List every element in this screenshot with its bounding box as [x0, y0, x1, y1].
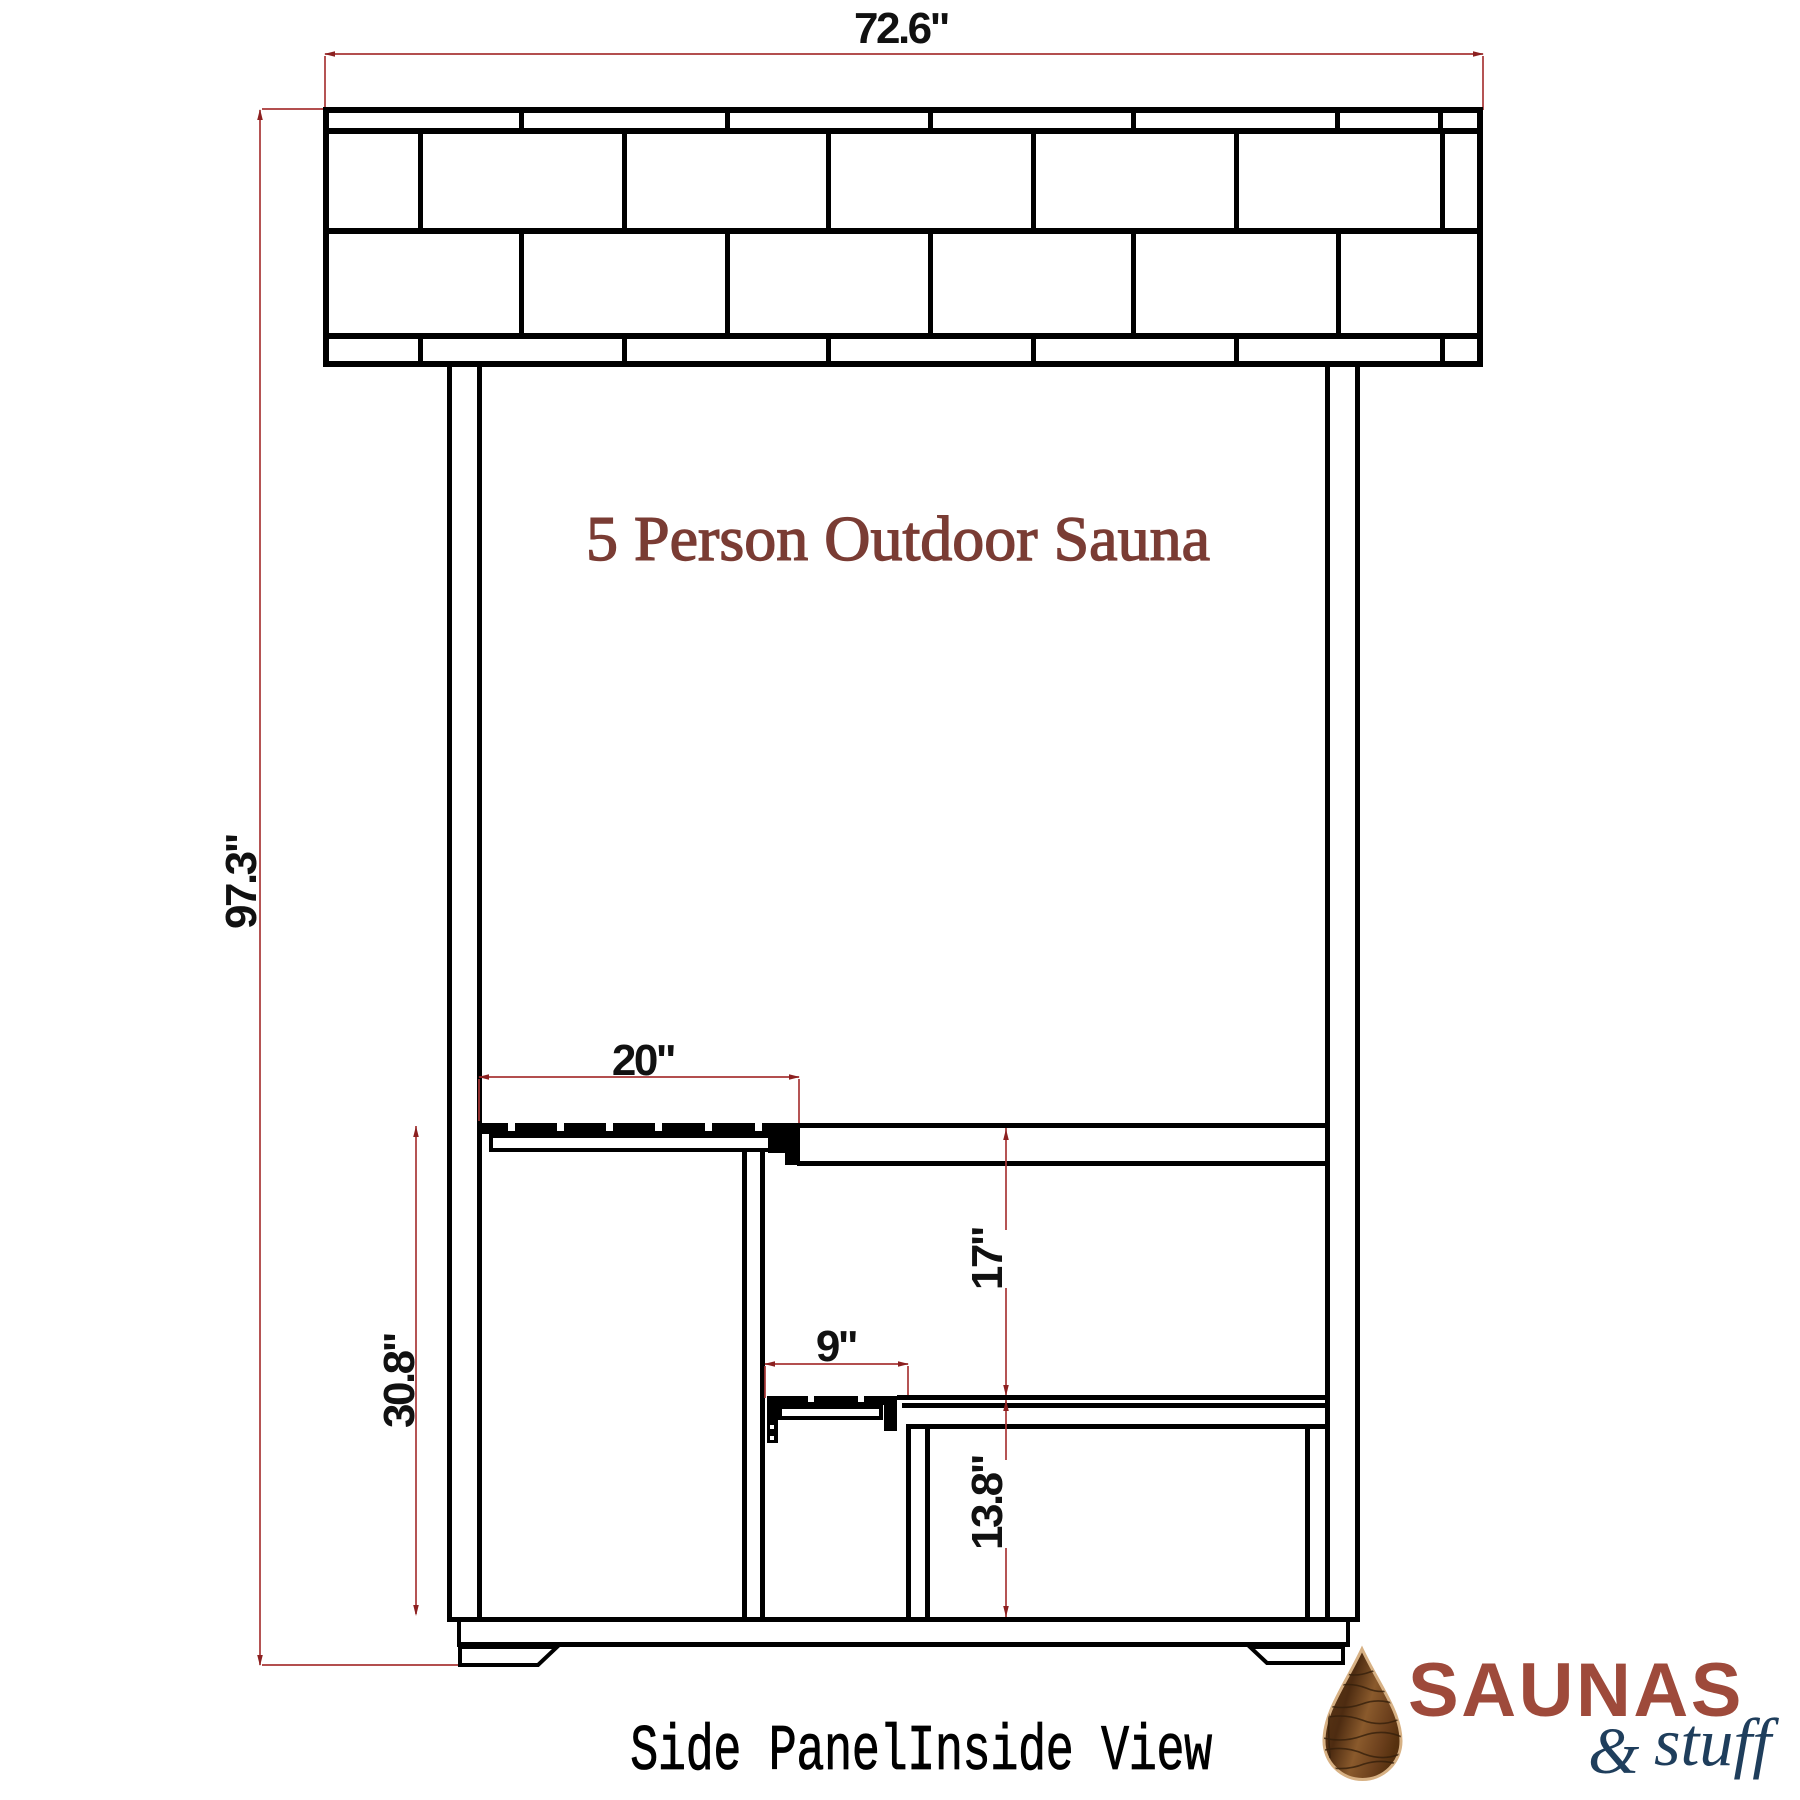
svg-text:&: &	[1588, 1715, 1640, 1788]
svg-text:30.8": 30.8"	[375, 1334, 424, 1428]
svg-text:20": 20"	[612, 1036, 674, 1085]
svg-text:stuff: stuff	[1654, 1704, 1779, 1780]
svg-text:17": 17"	[963, 1228, 1012, 1290]
svg-text:13.8": 13.8"	[963, 1456, 1012, 1550]
svg-text:97.3": 97.3"	[217, 835, 266, 929]
svg-text:5 Person Outdoor Sauna: 5 Person Outdoor Sauna	[586, 503, 1210, 574]
svg-text:Side PanelInside View: Side PanelInside View	[630, 1716, 1212, 1789]
svg-text:72.6": 72.6"	[854, 4, 948, 53]
svg-text:9": 9"	[816, 1322, 856, 1371]
